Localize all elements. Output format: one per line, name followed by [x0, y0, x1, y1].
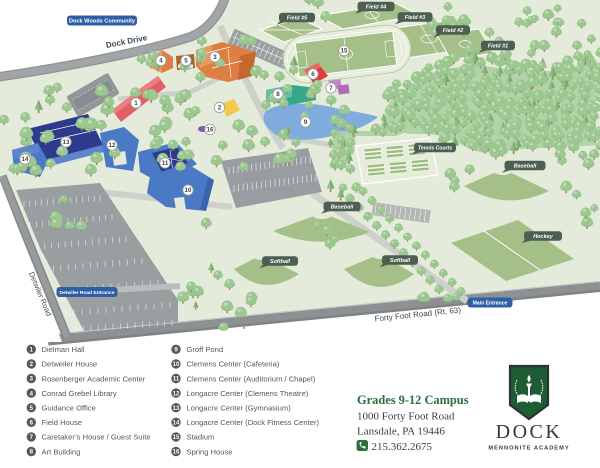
svg-text:Field House: Field House [42, 418, 83, 427]
svg-text:15: 15 [341, 48, 348, 55]
svg-text:10: 10 [185, 187, 192, 194]
svg-text:14: 14 [173, 421, 180, 427]
svg-text:Grades 9-12 Campus: Grades 9-12 Campus [357, 393, 469, 407]
svg-text:Field #1: Field #1 [488, 44, 508, 50]
svg-text:Clemens Center (Cafeteria): Clemens Center (Cafeteria) [187, 360, 280, 369]
svg-text:Baseball: Baseball [331, 205, 354, 211]
svg-text:Art Building: Art Building [42, 447, 81, 456]
svg-text:1: 1 [134, 100, 138, 107]
svg-text:Field #3: Field #3 [405, 15, 425, 21]
svg-text:Groff Pond: Groff Pond [187, 345, 224, 354]
svg-text:1000 Forty Foot Road: 1000 Forty Foot Road [357, 411, 455, 423]
svg-text:12: 12 [109, 142, 116, 149]
svg-text:9: 9 [304, 119, 308, 126]
svg-text:3: 3 [213, 54, 217, 61]
svg-text:14: 14 [22, 156, 29, 163]
svg-text:Stadium: Stadium [187, 433, 215, 442]
svg-text:12: 12 [173, 391, 180, 397]
svg-text:6: 6 [311, 71, 315, 78]
svg-text:Tennis Courts: Tennis Courts [418, 146, 452, 152]
svg-text:Conrad Grebel Library: Conrad Grebel Library [42, 389, 117, 398]
svg-text:7: 7 [329, 85, 333, 92]
svg-text:4: 4 [159, 58, 163, 65]
svg-text:Longacre Center (Clemens Theat: Longacre Center (Clemens Theatre) [187, 389, 309, 398]
svg-text:Dielman Hall: Dielman Hall [42, 345, 85, 354]
svg-text:Guidance Office: Guidance Office [42, 404, 96, 413]
svg-text:11: 11 [162, 160, 169, 167]
svg-text:13: 13 [63, 139, 70, 146]
svg-text:16: 16 [173, 450, 180, 456]
svg-text:13: 13 [173, 406, 180, 412]
svg-text:Detweiler House: Detweiler House [42, 360, 98, 369]
svg-text:215.362.2675: 215.362.2675 [372, 441, 433, 453]
svg-text:16: 16 [207, 127, 214, 134]
svg-text:Softball: Softball [390, 258, 411, 264]
svg-text:10: 10 [173, 362, 180, 368]
svg-text:Rosenberger Academic Center: Rosenberger Academic Center [42, 374, 146, 383]
svg-text:Hockey: Hockey [533, 234, 554, 240]
svg-text:Field #4: Field #4 [366, 5, 386, 11]
svg-text:Softball: Softball [270, 259, 291, 265]
svg-text:Clemens Center (Auditorium / C: Clemens Center (Auditorium / Chapel) [187, 374, 316, 383]
svg-text:5: 5 [184, 58, 188, 65]
svg-text:Longacre Center (Gymnasium): Longacre Center (Gymnasium) [187, 404, 292, 413]
svg-text:Detwiler Road Entrance: Detwiler Road Entrance [60, 290, 115, 296]
svg-text:Field #5: Field #5 [287, 16, 308, 22]
svg-text:Longacre Center (Dock Fitness: Longacre Center (Dock Fitness Center) [187, 418, 320, 427]
svg-text:Caretaker’s House / Guest Suit: Caretaker’s House / Guest Suite [42, 433, 151, 442]
svg-text:2: 2 [218, 105, 222, 112]
svg-text:11: 11 [173, 377, 180, 383]
svg-text:Field #2: Field #2 [443, 28, 463, 34]
svg-text:15: 15 [173, 435, 180, 441]
svg-text:8: 8 [276, 91, 280, 98]
svg-text:DOCK: DOCK [496, 421, 563, 443]
svg-text:Baseball: Baseball [514, 164, 537, 170]
svg-text:MENNONITE ACADEMY: MENNONITE ACADEMY [488, 446, 569, 452]
svg-text:Spring House: Spring House [187, 447, 233, 456]
svg-text:Lansdale, PA 19446: Lansdale, PA 19446 [357, 426, 445, 438]
svg-text:Dock Woods Community: Dock Woods Community [69, 19, 136, 25]
svg-text:Main Entrance: Main Entrance [473, 301, 508, 307]
